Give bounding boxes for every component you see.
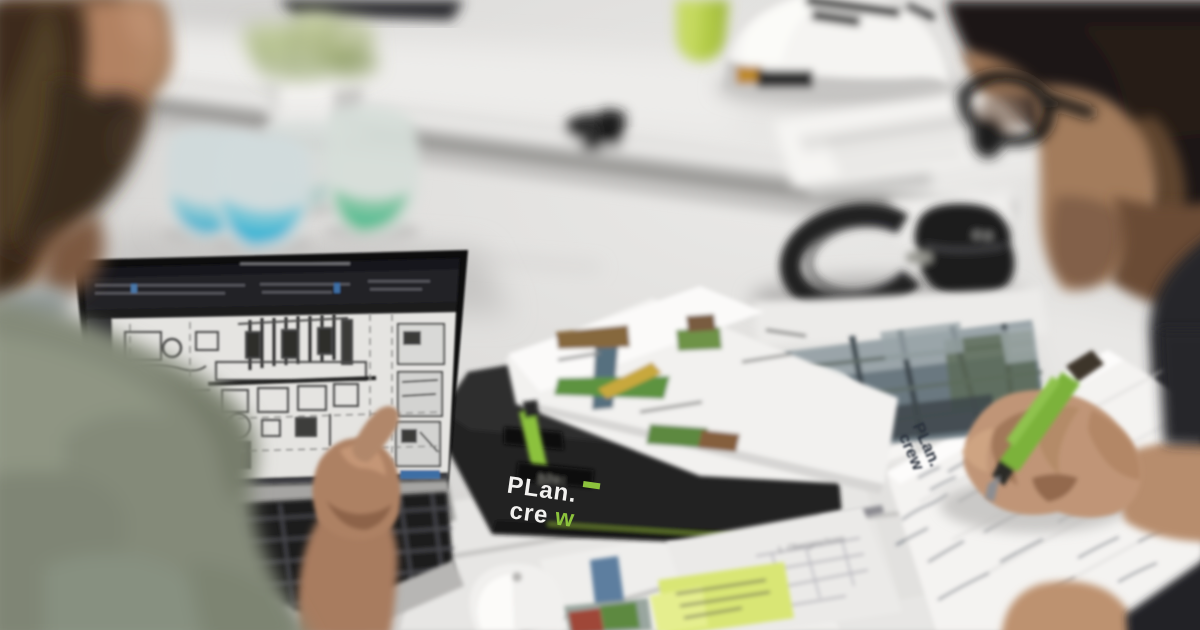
svg-text:cre: cre	[508, 497, 550, 529]
svg-text:w: w	[552, 503, 576, 533]
